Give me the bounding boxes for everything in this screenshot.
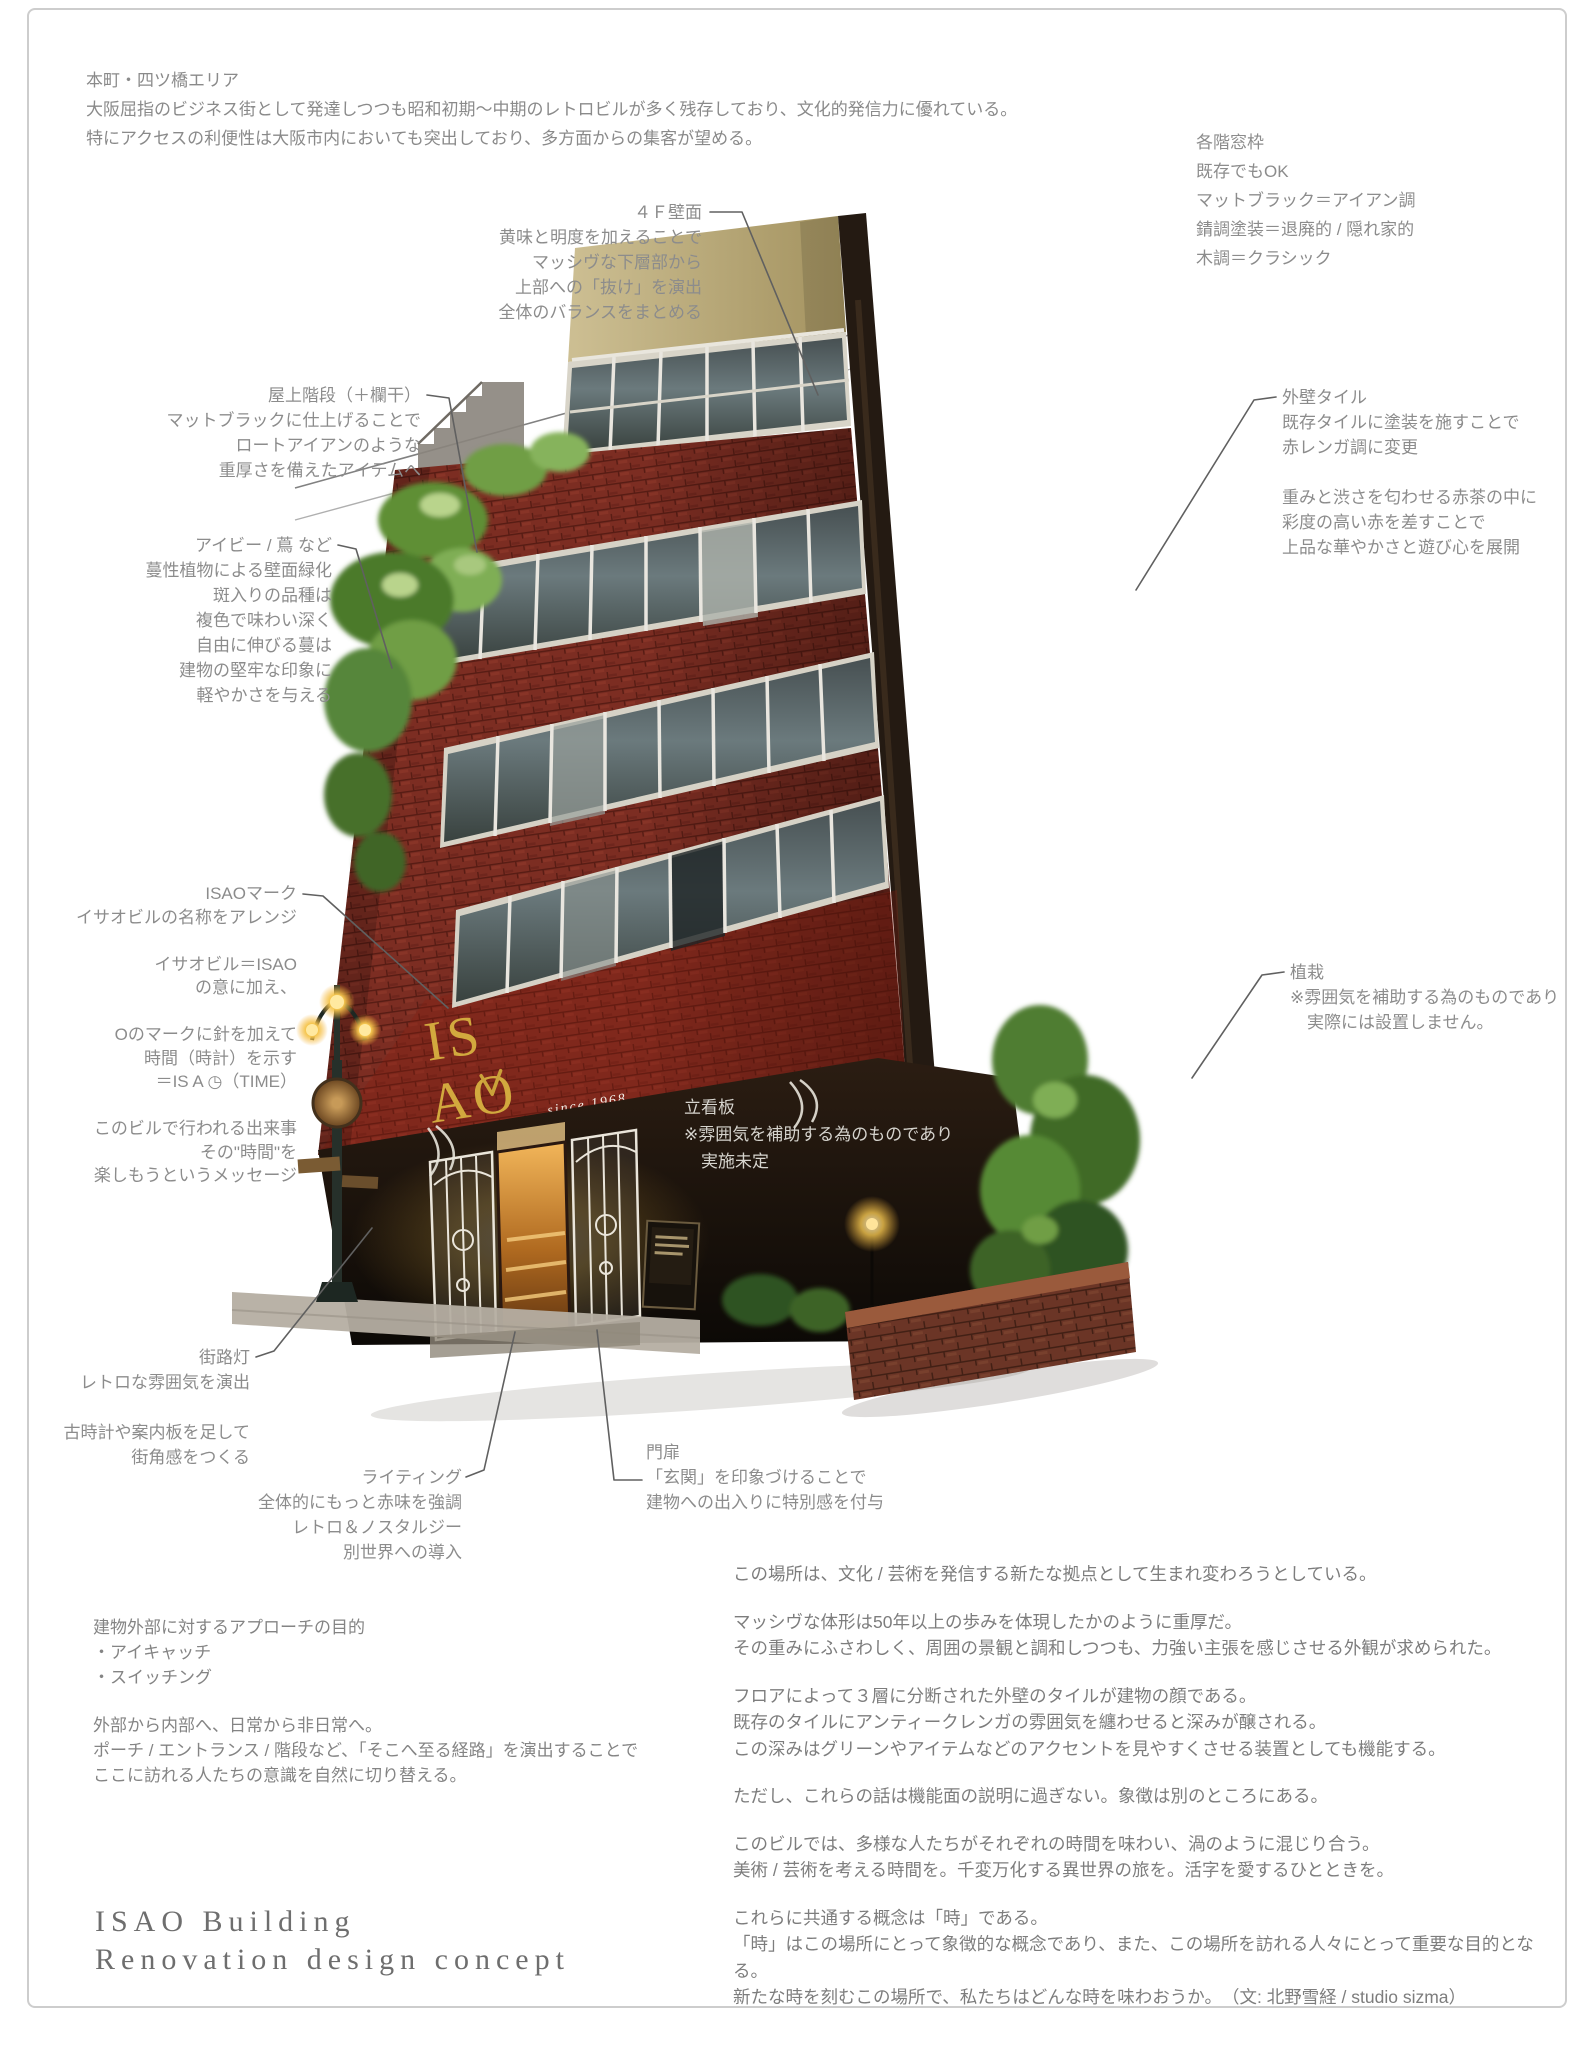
- annotation-ivy: アイビー / 蔦 など 蔓性植物による壁面緑化 斑入りの品種は 複色で味わい深く…: [146, 533, 333, 708]
- annotation-street-lamp: 街路灯 レトロな雰囲気を演出 古時計や案内板を足して 街角感をつくる: [64, 1345, 251, 1470]
- annotation-isao-mark: ISAOマーク イサオビルの名称をアレンジ イサオビル＝ISAO の意に加え、 …: [76, 882, 297, 1188]
- annotation-exterior-tiles: 外壁タイル 既存タイルに塗装を施すことで 赤レンガ調に変更 重みと渋さを匂わせる…: [1282, 385, 1537, 560]
- closing-p5: このビルでは、多様な人たちがそれぞれの時間を味わい、渦のように混じり合う。 美術…: [733, 1831, 1548, 1884]
- sandwich-board: [643, 1221, 699, 1310]
- annotation-rooftop-stairs: 屋上階段（＋欄干） マットブラックに仕上げることで ロートアイアンのような 重厚…: [167, 383, 422, 483]
- annotation-lighting: ライティング 全体的にもっと赤味を強調 レトロ＆ノスタルジー 別世界への導入: [258, 1465, 462, 1565]
- iron-gate-right: [572, 1130, 640, 1326]
- window-frames-note: 各階窓枠 既存でもOK マットブラック＝アイアン調 錆調塗装＝退廃的 / 隠れ家…: [1196, 128, 1415, 273]
- area-intro-text: 本町・四ツ橋エリア 大阪屈指のビジネス街として発達しつつも昭和初期～中期のレトロ…: [86, 66, 1236, 153]
- approach-flow: 外部から内部へ、日常から非日常へ。 ポーチ / エントランス / 階段など、「そ…: [93, 1713, 638, 1788]
- closing-p6: これらに共通する概念は「時」である。 「時」はこの場所にとって象徴的な概念であり…: [733, 1905, 1548, 2011]
- closing-p1: この場所は、文化 / 芸術を発信する新たな拠点として生まれ変わろうとしている。: [733, 1561, 1548, 1588]
- annotation-4f-wall: ４Ｆ壁面 黄味と明度を加えることで マッシヴな下層部から 上部への「抜け」を演出…: [498, 200, 702, 325]
- closing-paragraphs: この場所は、文化 / 芸術を発信する新たな拠点として生まれ変わろうとしている。 …: [733, 1561, 1548, 2032]
- closing-p2: マッシヴな体形は50年以上の歩みを体現したかのように重厚だ。 その重みにふさわし…: [733, 1609, 1548, 1662]
- closing-p4: ただし、これらの話は機能面の説明に過ぎない。象徴は別のところにある。: [733, 1783, 1548, 1810]
- concept-sheet: IS AO since 1968: [0, 0, 1592, 2048]
- sheet-title: ISAO Building Renovation design concept: [95, 1903, 570, 1979]
- annotation-standing-sign: 立看板 ※雰囲気を補助する為のものであり 実施未定: [684, 1094, 953, 1175]
- annotation-planting: 植栽 ※雰囲気を補助する為のものであり 実際には設置しません。: [1290, 960, 1559, 1035]
- closing-p3: フロアによって３層に分断された外壁のタイルが建物の顔である。 既存のタイルにアン…: [733, 1683, 1548, 1763]
- isao-logo-top: IS: [421, 1003, 488, 1073]
- lamp-globe-clock: [313, 1079, 361, 1127]
- approach-purpose: 建物外部に対するアプローチの目的 ・アイキャッチ ・スイッチング: [93, 1615, 365, 1690]
- annotation-gate: 門扉 「玄関」を印象づけることで 建物への出入りに特別感を付与: [646, 1440, 884, 1515]
